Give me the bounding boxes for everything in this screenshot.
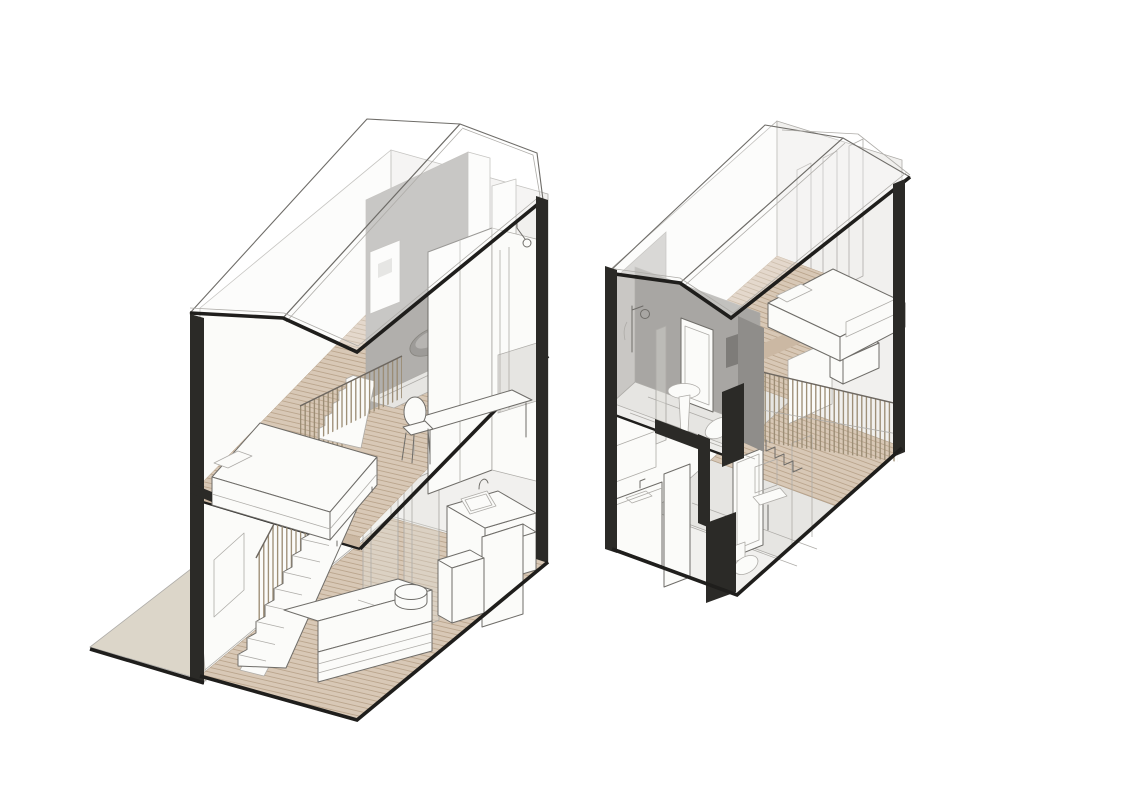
round-side-table <box>395 585 427 600</box>
cut-column <box>190 314 204 684</box>
low-cabinet-side <box>438 560 452 623</box>
cut-wall <box>698 434 710 528</box>
sink-pedestal <box>679 395 690 434</box>
towel <box>726 334 738 368</box>
cut-column <box>605 266 617 553</box>
canvas-background <box>0 0 1131 800</box>
cut-column <box>536 196 548 563</box>
drawing-canvas <box>0 0 1131 800</box>
cut-column <box>893 179 905 457</box>
axonometric-drawing <box>0 0 1131 800</box>
cut-wall <box>722 383 744 467</box>
low-cabinet-front <box>452 558 484 623</box>
